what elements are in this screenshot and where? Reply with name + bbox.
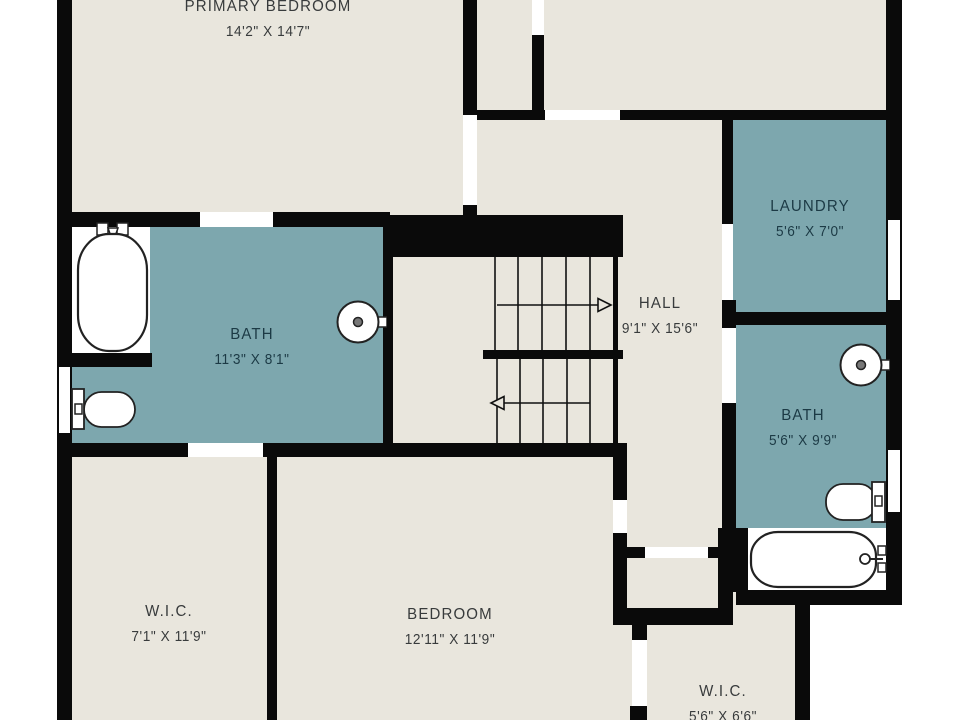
wall-wic-right-left-nub-bottom bbox=[630, 706, 647, 720]
room-laundry-floor bbox=[733, 120, 886, 312]
door-opening-primary-to-bath bbox=[200, 212, 273, 227]
wall-top-rooms-bottom-b bbox=[620, 110, 902, 120]
staircase bbox=[393, 257, 623, 443]
bathtub-right bbox=[748, 526, 888, 592]
bathtub-left bbox=[72, 221, 152, 354]
window-laundry bbox=[886, 218, 902, 302]
door-opening-laundry bbox=[722, 224, 733, 300]
wall-bedroom-right-b bbox=[613, 533, 627, 608]
window-bath-right bbox=[886, 448, 902, 514]
wall-primary-bottom-b bbox=[273, 212, 390, 227]
wall-bath-right-left bbox=[722, 403, 736, 528]
door-opening-wic-right bbox=[632, 640, 647, 706]
door-opening-bedroom bbox=[613, 500, 627, 533]
wall-outer-right bbox=[886, 0, 902, 605]
wall-primary-right bbox=[463, 0, 477, 115]
wall-bedroom-right-a bbox=[613, 455, 627, 500]
stairs-up-arrow bbox=[497, 299, 611, 312]
sink-right bbox=[836, 340, 890, 390]
stairs-down-arrow bbox=[491, 397, 590, 410]
door-opening-bath-to-wic bbox=[188, 443, 263, 457]
wall-laundry-left bbox=[722, 120, 733, 224]
wall-laundry-bottom bbox=[722, 312, 902, 325]
door-opening-hall-vestibule bbox=[645, 547, 708, 558]
wall-vestibule-bottom bbox=[613, 608, 733, 625]
toilet-left bbox=[58, 384, 140, 434]
faucet-icon bbox=[860, 554, 870, 564]
door-opening-top-closet bbox=[532, 0, 544, 35]
wall-wic-right-left-nub-top bbox=[632, 625, 647, 640]
wall-closet-right bbox=[532, 35, 544, 120]
door-opening-bath-right bbox=[722, 328, 736, 403]
floor-plan: PRIMARY BEDROOM 14'2" X 14'7" LAUNDRY 5'… bbox=[0, 0, 960, 720]
door-opening-top-room bbox=[545, 110, 620, 120]
wall-mid-bottom-band bbox=[57, 443, 627, 457]
wall-stair-top-band bbox=[390, 215, 623, 257]
wall-bath-right-bottom bbox=[736, 590, 902, 605]
wall-wic-bedroom bbox=[267, 455, 277, 720]
sink-left bbox=[333, 297, 387, 347]
wall-wic-right-right bbox=[795, 602, 810, 720]
door-opening-primary-right bbox=[463, 115, 477, 205]
toilet-right bbox=[820, 480, 888, 524]
